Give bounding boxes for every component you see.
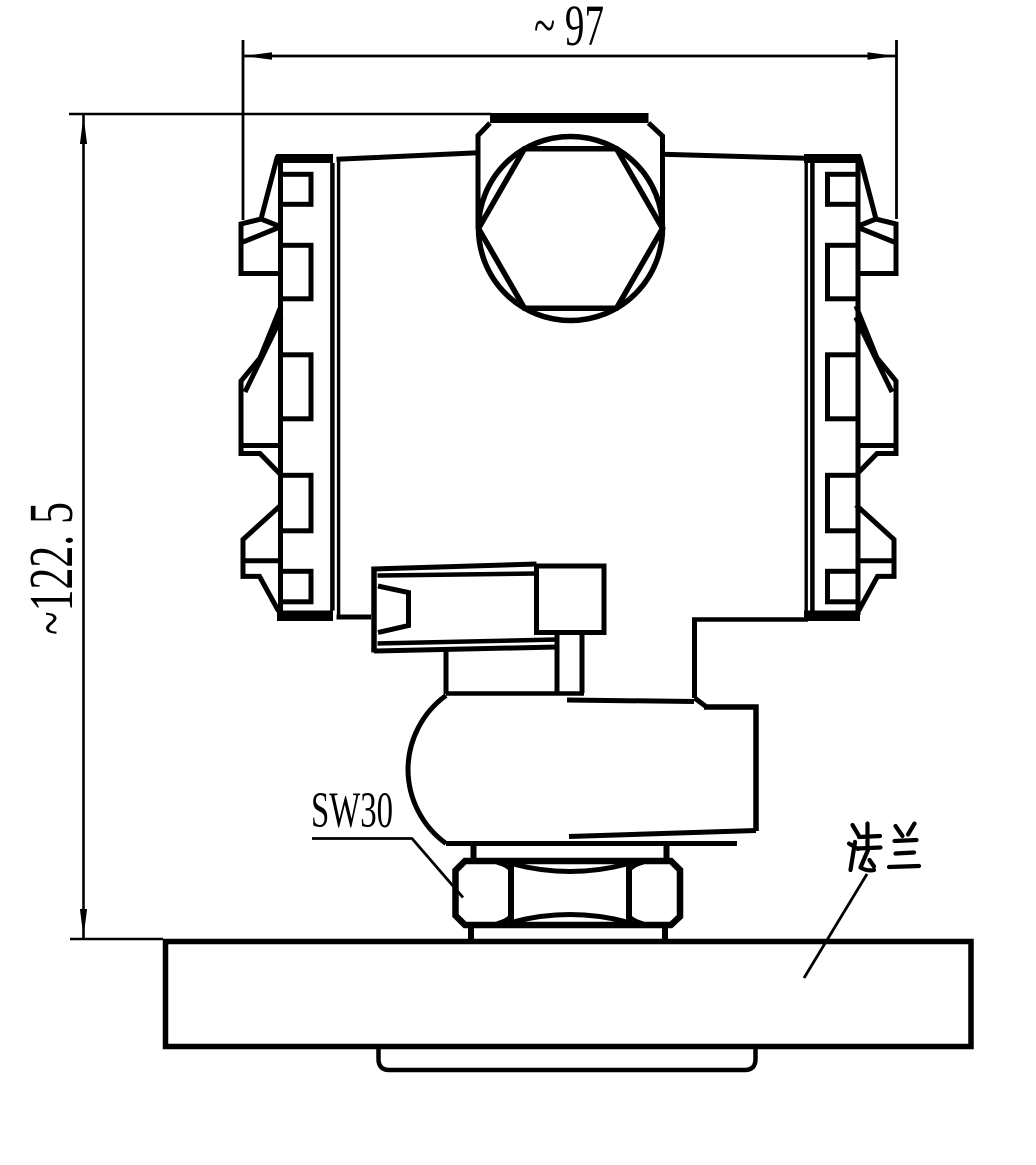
svg-text:~ 97: ~ 97 — [534, 0, 604, 58]
svg-text:~122. 5: ~122. 5 — [18, 502, 86, 635]
svg-text:SW30: SW30 — [311, 783, 393, 839]
